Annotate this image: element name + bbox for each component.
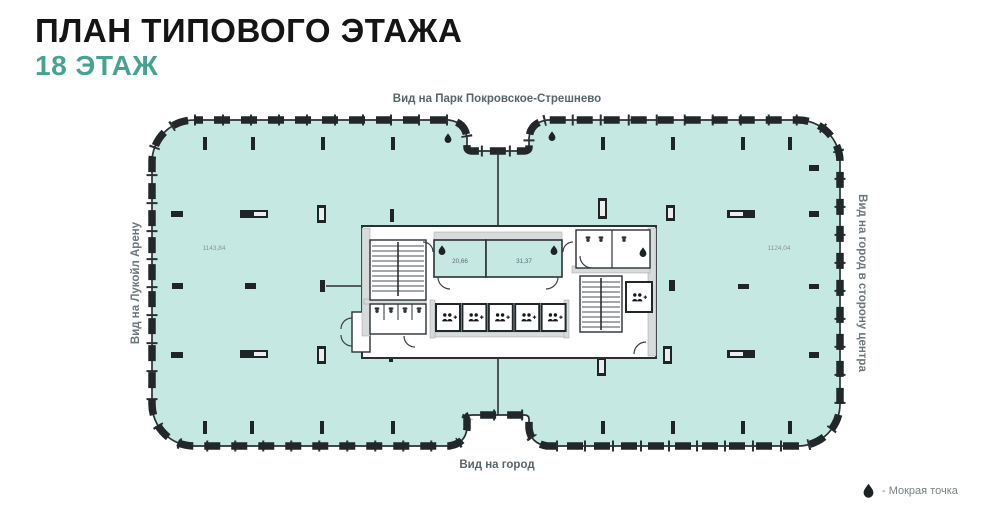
area-label-left: 1143,84	[202, 245, 225, 252]
wc-left	[370, 304, 426, 334]
page-root: ПЛАН ТИПОВОГО ЭТАЖА 18 ЭТАЖ Вид на Парк …	[0, 0, 997, 526]
building-core	[341, 226, 656, 358]
elevator-fire	[626, 282, 652, 312]
elevator-bank	[436, 304, 566, 331]
stair-left	[370, 240, 426, 300]
wet-room-left-label: 20,66	[452, 258, 468, 265]
floor-plan-svg: 1143,84 1124,04 20,66 31,37	[0, 0, 997, 526]
wc-right	[576, 230, 650, 268]
area-label-right: 1124,04	[767, 245, 790, 252]
legend: - Мокрая точка	[862, 483, 958, 499]
wet-room-right-label: 31,37	[516, 258, 532, 265]
stair-right	[580, 276, 622, 332]
legend-label: - Мокрая точка	[882, 485, 958, 497]
water-drop-icon	[862, 483, 875, 499]
